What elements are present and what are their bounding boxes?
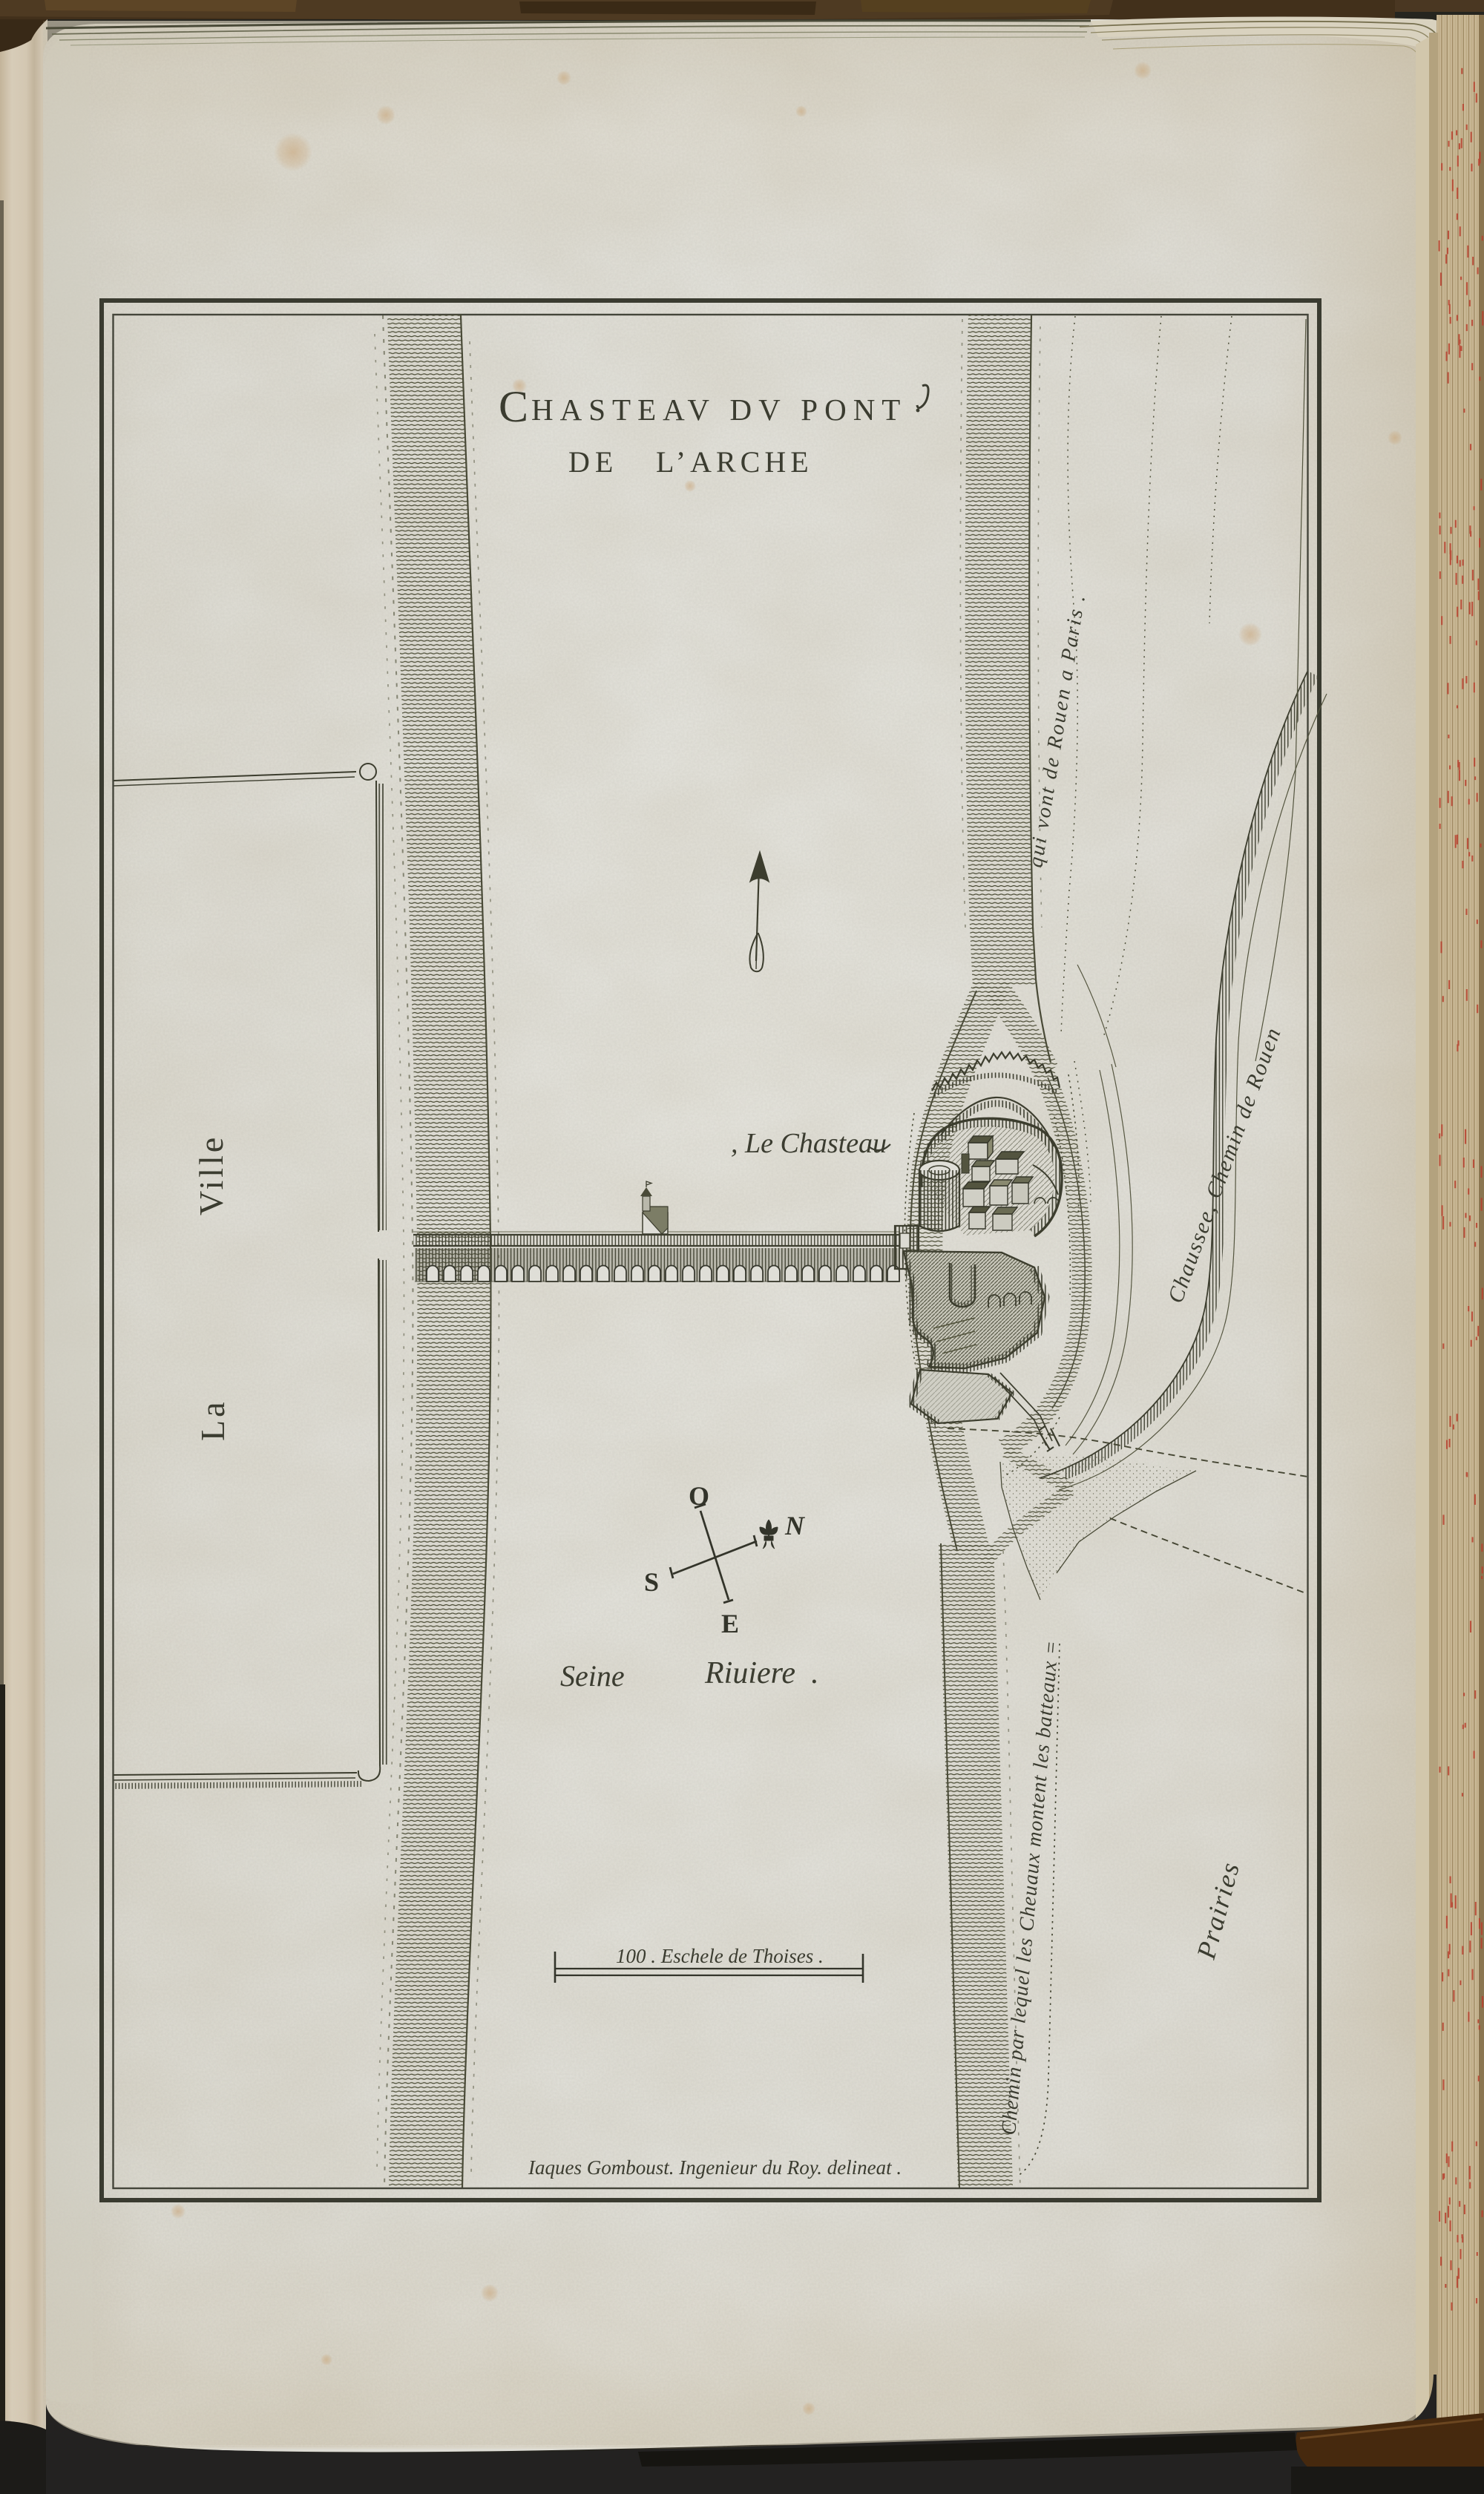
svg-text:E: E — [721, 1609, 739, 1638]
svg-text:N: N — [784, 1511, 806, 1540]
svg-text:L’ARCHE: L’ARCHE — [656, 445, 813, 479]
svg-text:S: S — [644, 1567, 659, 1597]
svg-text:C: C — [499, 382, 528, 431]
svg-text:Riuiere .: Riuiere . — [704, 1656, 819, 1690]
svg-text:La: La — [194, 1399, 232, 1441]
svg-text:Iaques Gomboust. Ingenieur du: Iaques Gomboust. Ingenieur du Roy. delin… — [528, 2156, 902, 2179]
svg-text:100 . Eschele de Thoises .: 100 . Eschele de Thoises . — [616, 1945, 824, 1967]
svg-text:Seine: Seine — [560, 1659, 625, 1693]
svg-text:Ville: Ville — [192, 1135, 230, 1215]
svg-text:, Le Chasteau: , Le Chasteau — [731, 1128, 887, 1159]
svg-text:O: O — [689, 1481, 709, 1511]
svg-text:HASTEAV DV PONT: HASTEAV DV PONT — [531, 393, 907, 427]
svg-text:DE: DE — [568, 445, 618, 479]
